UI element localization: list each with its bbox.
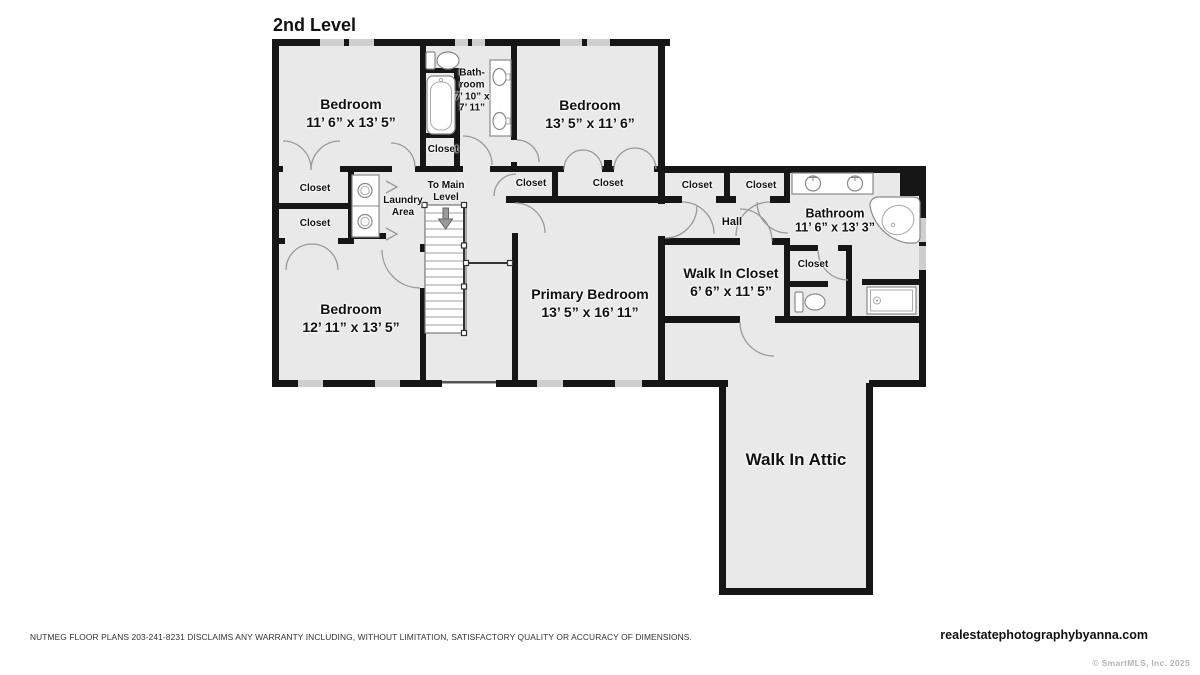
footer-website: realestatephotographybyanna.com bbox=[940, 628, 1148, 642]
wall bbox=[784, 238, 790, 322]
room-name: room bbox=[454, 79, 489, 91]
footer-disclaimer: NUTMEG FLOOR PLANS 203-241-8231 DISCLAIM… bbox=[30, 632, 692, 642]
wall bbox=[654, 166, 662, 172]
window-mullion bbox=[468, 39, 472, 46]
floor-plan-page: 2nd Level Bedroom 11’ 6” x 13’ 5” Bath- … bbox=[0, 0, 1200, 675]
railing-post bbox=[508, 261, 513, 266]
room-label-bathroom2: Bathroom 11’ 6” x 13’ 3” bbox=[795, 207, 875, 236]
closet-label: Closet bbox=[428, 144, 459, 156]
room-name: Bedroom bbox=[306, 95, 396, 113]
railing-post bbox=[462, 284, 467, 289]
closet-label: Closet bbox=[798, 259, 829, 271]
railing-post bbox=[462, 331, 467, 336]
closet-label: Closet bbox=[300, 218, 331, 230]
room-name: Walk In Closet bbox=[683, 264, 778, 282]
wall bbox=[662, 196, 682, 203]
wall bbox=[869, 380, 926, 387]
wall bbox=[272, 39, 279, 387]
room-label-hall: Hall bbox=[722, 215, 742, 229]
closet-label: Closet bbox=[682, 180, 713, 192]
wall-pier bbox=[900, 166, 926, 196]
footer-credit: © SmartMLS, Inc. 2025 bbox=[1092, 658, 1190, 668]
room-dims: 7’ 10” x bbox=[454, 91, 489, 103]
wall bbox=[563, 380, 615, 387]
window bbox=[375, 380, 400, 387]
wall bbox=[506, 196, 665, 203]
wall bbox=[323, 380, 375, 387]
room-name: Primary Bedroom bbox=[531, 285, 648, 303]
room-label-walk-in-closet: Walk In Closet 6’ 6” x 11’ 5” bbox=[683, 264, 778, 300]
shower-icon bbox=[867, 287, 916, 314]
closet-label: Closet bbox=[516, 178, 547, 190]
closet-label: Closet bbox=[746, 180, 777, 192]
washer-dryer-icon bbox=[352, 175, 379, 237]
room-name: Bedroom bbox=[545, 96, 635, 114]
room-name: Bedroom bbox=[302, 300, 399, 318]
room-name: Laundry bbox=[383, 195, 422, 207]
wall bbox=[272, 203, 353, 209]
room-name: To Main bbox=[427, 180, 464, 192]
wall bbox=[272, 166, 283, 172]
wall bbox=[511, 162, 517, 172]
wall bbox=[642, 380, 728, 387]
railing-post bbox=[464, 261, 469, 266]
laundry-area-label: Laundry Area bbox=[383, 195, 422, 219]
wall bbox=[846, 245, 852, 322]
bathroom2-double-sink-vanity-icon bbox=[792, 173, 873, 194]
room-name: Bath- bbox=[454, 67, 489, 79]
wall bbox=[512, 233, 518, 383]
page-title: 2nd Level bbox=[273, 15, 356, 36]
room-dims: 7’ 11” bbox=[454, 103, 489, 115]
room-dims: 13’ 5” x 11’ 6” bbox=[545, 114, 635, 132]
room-label-bedroom3: Bedroom 12’ 11” x 13’ 5” bbox=[302, 300, 399, 336]
wall bbox=[716, 196, 736, 203]
wall bbox=[790, 245, 818, 251]
window bbox=[615, 380, 642, 387]
toilet2-icon bbox=[795, 292, 825, 312]
wall bbox=[658, 236, 665, 387]
wall bbox=[719, 383, 726, 595]
wall bbox=[658, 238, 740, 245]
window bbox=[537, 380, 563, 387]
bathtub-icon bbox=[427, 76, 455, 134]
room-label-primary-bedroom: Primary Bedroom 13’ 5” x 16’ 11” bbox=[531, 285, 648, 321]
room-label-bedroom2: Bedroom 13’ 5” x 11’ 6” bbox=[545, 96, 635, 132]
double-sink-vanity-icon bbox=[490, 60, 511, 136]
stairwell-edge-line bbox=[442, 381, 496, 384]
room-dims: 6’ 6” x 11’ 5” bbox=[683, 282, 778, 300]
to-main-level-label: To Main Level bbox=[427, 180, 464, 204]
railing-post bbox=[422, 203, 427, 208]
room-dims: 11’ 6” x 13’ 5” bbox=[306, 113, 396, 131]
window-mullion bbox=[344, 39, 349, 46]
room-label-bathroom1: Bath- room 7’ 10” x 7’ 11” bbox=[454, 67, 489, 114]
room-name: Level bbox=[427, 192, 464, 204]
wall bbox=[862, 279, 922, 285]
attic-floor bbox=[722, 383, 872, 590]
window-mullion bbox=[582, 39, 587, 46]
wall bbox=[511, 44, 517, 140]
wall bbox=[272, 238, 285, 244]
room-dims: 11’ 6” x 13’ 3” bbox=[795, 221, 875, 235]
wall bbox=[272, 380, 298, 387]
wall bbox=[770, 196, 790, 203]
wall bbox=[919, 166, 926, 387]
wall bbox=[604, 160, 612, 172]
wall bbox=[340, 166, 392, 172]
room-label-walk-in-attic: Walk In Attic bbox=[746, 449, 847, 471]
wall bbox=[662, 316, 740, 323]
room-label-bedroom1: Bedroom 11’ 6” x 13’ 5” bbox=[306, 95, 396, 131]
railing-post bbox=[462, 243, 467, 248]
wall bbox=[658, 39, 665, 204]
wall bbox=[866, 383, 873, 595]
window bbox=[298, 380, 323, 387]
wall bbox=[790, 281, 828, 287]
closet-label: Closet bbox=[593, 178, 624, 190]
wall bbox=[658, 166, 926, 173]
room-name: Area bbox=[383, 207, 422, 219]
room-dims: 13’ 5” x 16’ 11” bbox=[531, 303, 648, 321]
window-mullion bbox=[919, 242, 926, 246]
wall bbox=[719, 588, 873, 595]
room-name: Bathroom bbox=[795, 207, 875, 221]
wall bbox=[420, 44, 426, 172]
room-dims: 12’ 11” x 13’ 5” bbox=[302, 318, 399, 336]
closet-label: Closet bbox=[300, 183, 331, 195]
